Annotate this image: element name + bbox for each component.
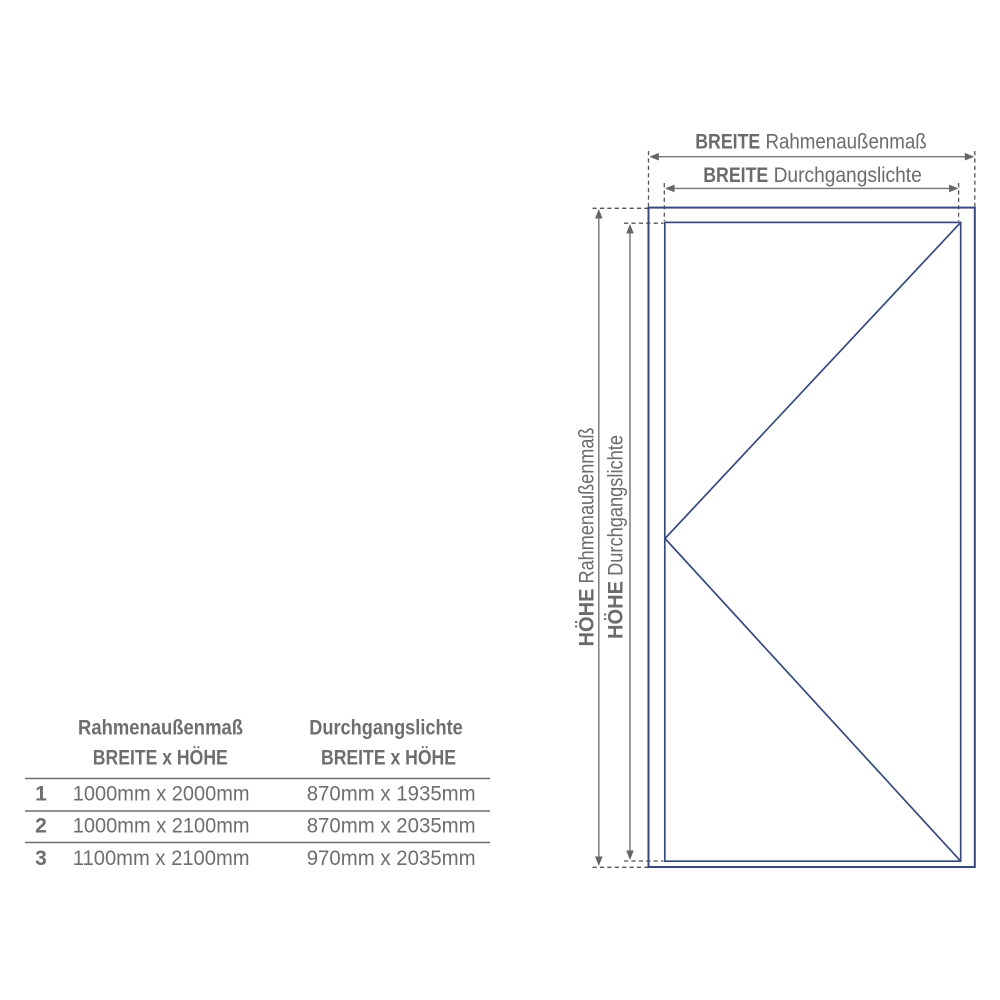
svg-text:Durchgangslichte: Durchgangslichte xyxy=(309,716,463,739)
svg-text:BREITE Durchgangslichte: BREITE Durchgangslichte xyxy=(703,164,922,187)
svg-text:970mm x 2035mm: 970mm x 2035mm xyxy=(307,847,476,870)
svg-text:Rahmenaußenmaß: Rahmenaußenmaß xyxy=(78,716,243,739)
svg-text:HÖHE Durchgangslichte: HÖHE Durchgangslichte xyxy=(605,435,628,639)
svg-text:1000mm x 2100mm: 1000mm x 2100mm xyxy=(73,815,250,838)
svg-text:BREITE x HÖHE: BREITE x HÖHE xyxy=(93,746,228,769)
svg-text:1100mm x 2100mm: 1100mm x 2100mm xyxy=(73,847,250,870)
svg-text:HÖHE Rahmenaußenmaß: HÖHE Rahmenaußenmaß xyxy=(576,428,599,647)
svg-text:870mm x 1935mm: 870mm x 1935mm xyxy=(307,783,476,806)
svg-text:BREITE Rahmenaußenmaß: BREITE Rahmenaußenmaß xyxy=(695,130,927,153)
svg-text:1000mm x 2000mm: 1000mm x 2000mm xyxy=(73,783,250,806)
svg-text:3: 3 xyxy=(35,847,47,870)
svg-text:BREITE x HÖHE: BREITE x HÖHE xyxy=(321,746,456,769)
svg-text:1: 1 xyxy=(35,783,47,806)
svg-text:2: 2 xyxy=(35,815,47,838)
svg-text:870mm x 2035mm: 870mm x 2035mm xyxy=(307,815,476,838)
